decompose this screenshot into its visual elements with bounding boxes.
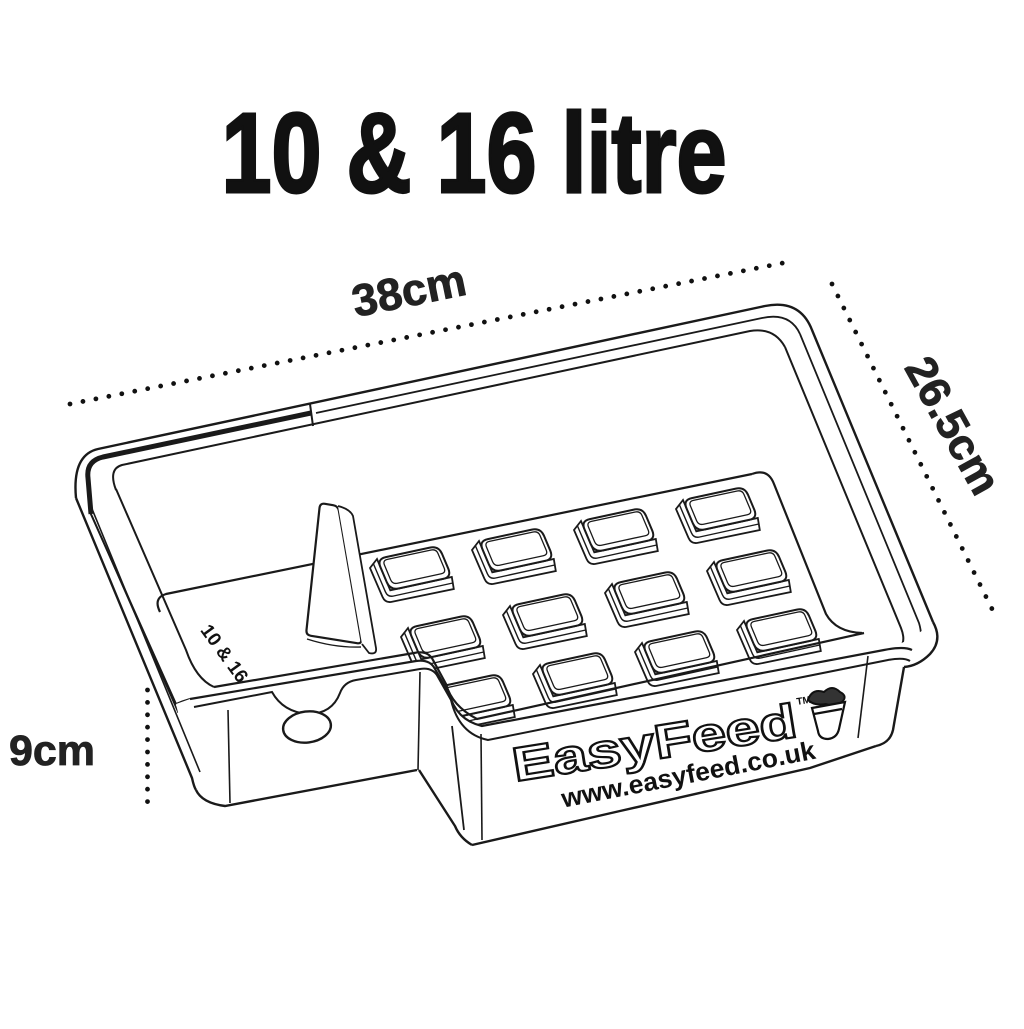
svg-text:38cm: 38cm — [347, 254, 470, 327]
svg-text:10 & 16: 10 & 16 — [196, 621, 252, 687]
svg-text:10 & 16 litre: 10 & 16 litre — [222, 90, 727, 216]
svg-text:26.5cm: 26.5cm — [895, 349, 1010, 503]
svg-text:9cm: 9cm — [9, 727, 95, 775]
